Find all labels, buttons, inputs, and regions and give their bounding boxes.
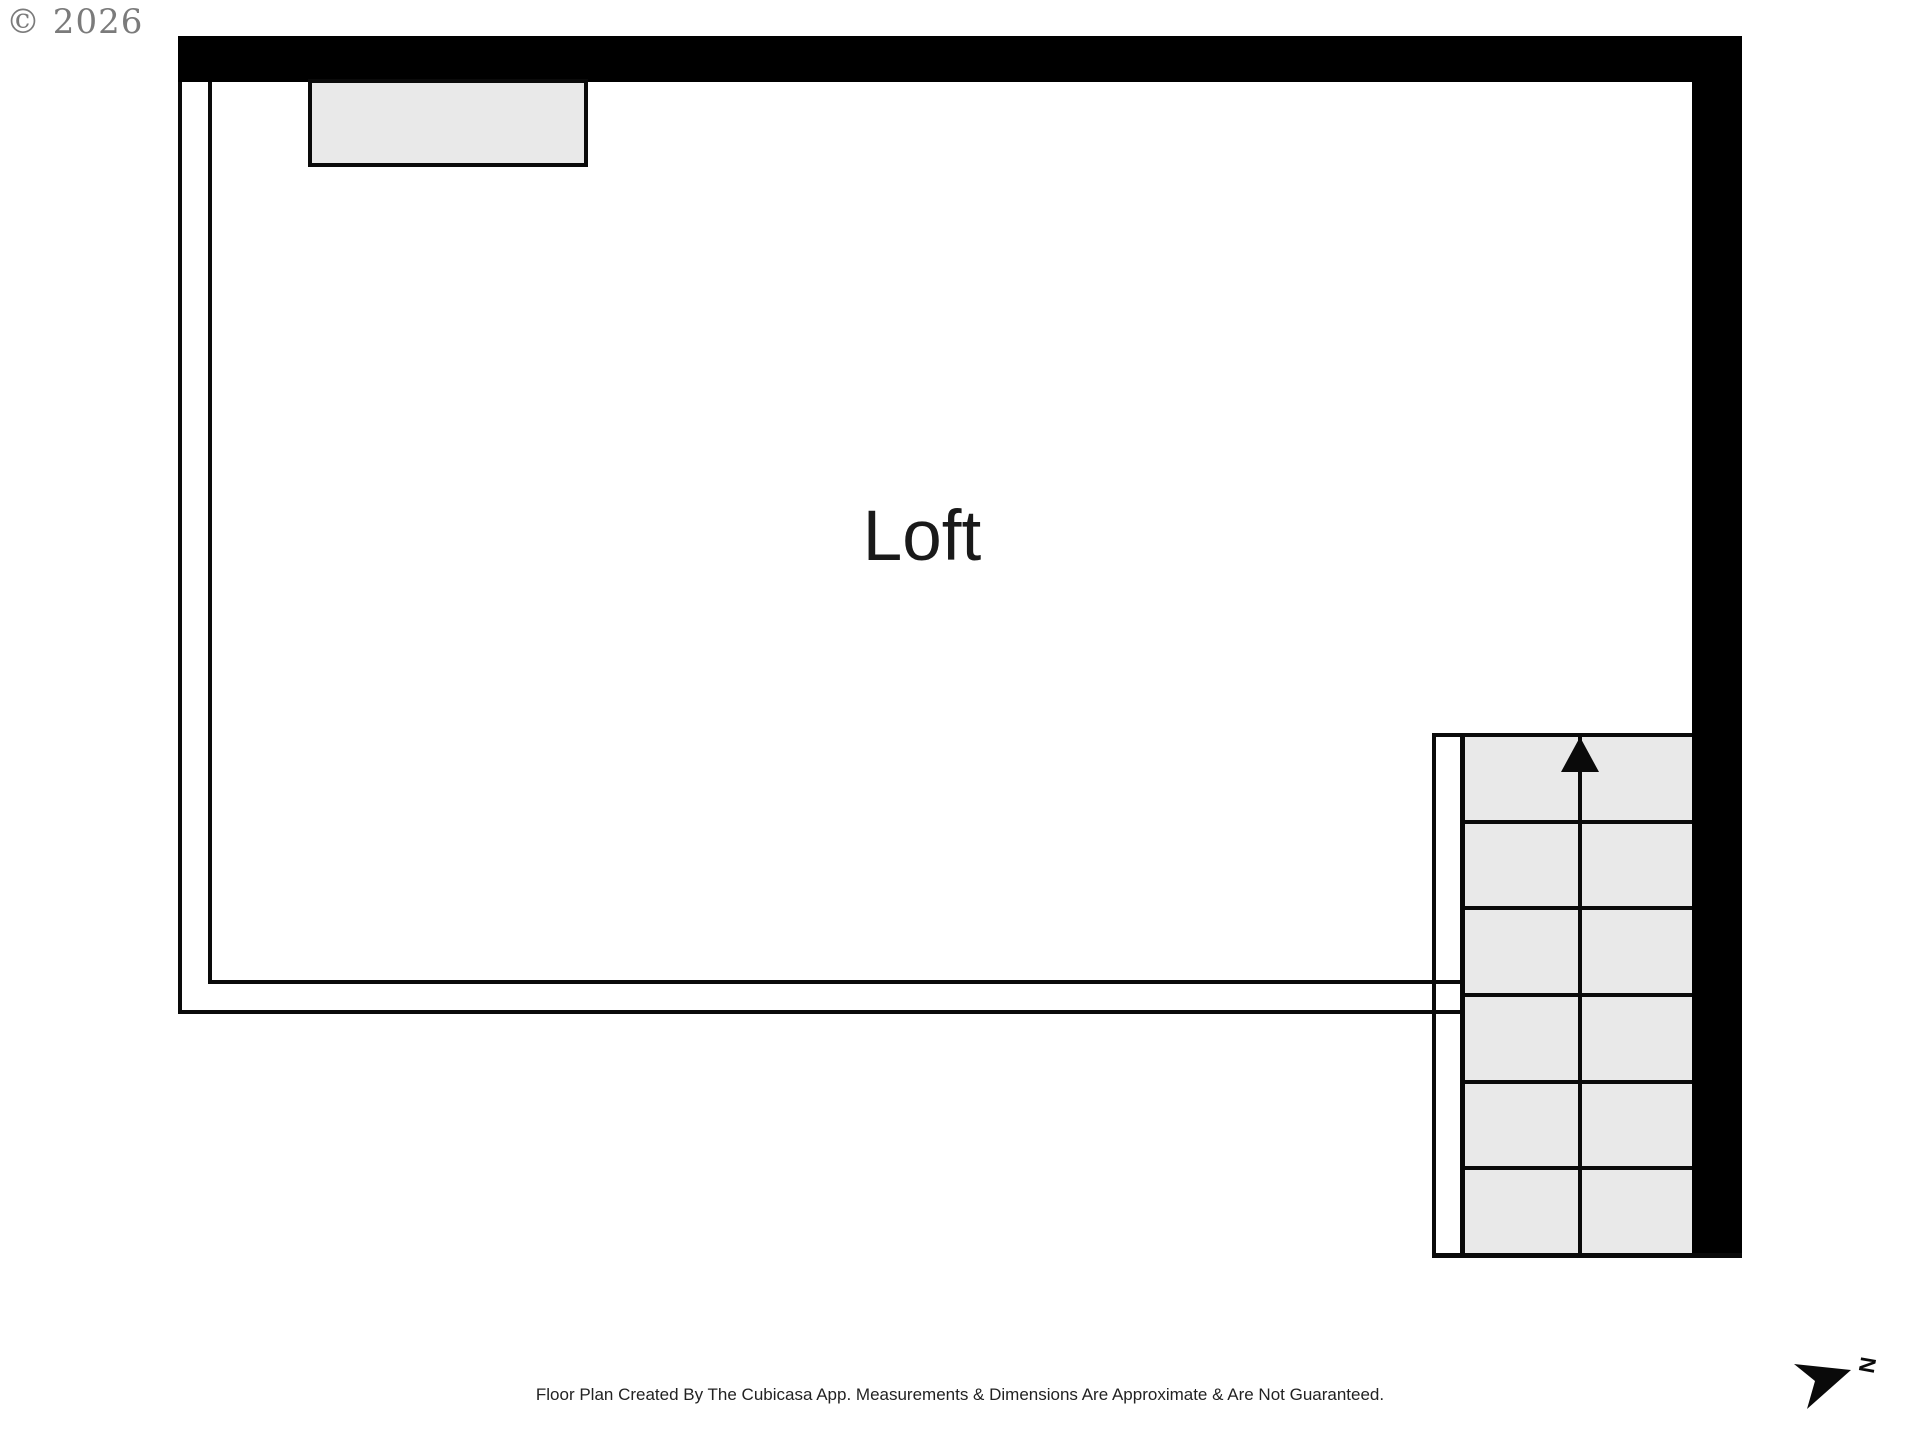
wall-right [1692, 36, 1742, 1257]
north-arrow-shape [1794, 1364, 1851, 1409]
copyright-watermark: © 2026 [6, 2, 143, 42]
wall-left-inner-line [208, 82, 212, 984]
wall-top [178, 36, 1742, 82]
wall-left-outer-line [178, 82, 182, 1014]
room-label: Loft [772, 496, 1072, 577]
staircase [1460, 733, 1692, 1257]
wall-bottom-inner-line [208, 980, 1465, 984]
stairs-up-arrow-icon [1561, 737, 1599, 772]
disclaimer-text: Floor Plan Created By The Cubicasa App. … [0, 1385, 1920, 1405]
north-label: N [1854, 1355, 1881, 1375]
floor-plan-canvas: © 2026 Loft Floor Plan Created By The Cu… [0, 0, 1920, 1440]
stairs-walk-line [1578, 737, 1582, 1253]
north-arrow-icon: N [1778, 1340, 1888, 1420]
wall-bottom-outer-line [178, 1010, 1465, 1014]
stair-enclosure-left-line [1432, 733, 1436, 1258]
closet-fixture [308, 79, 588, 167]
